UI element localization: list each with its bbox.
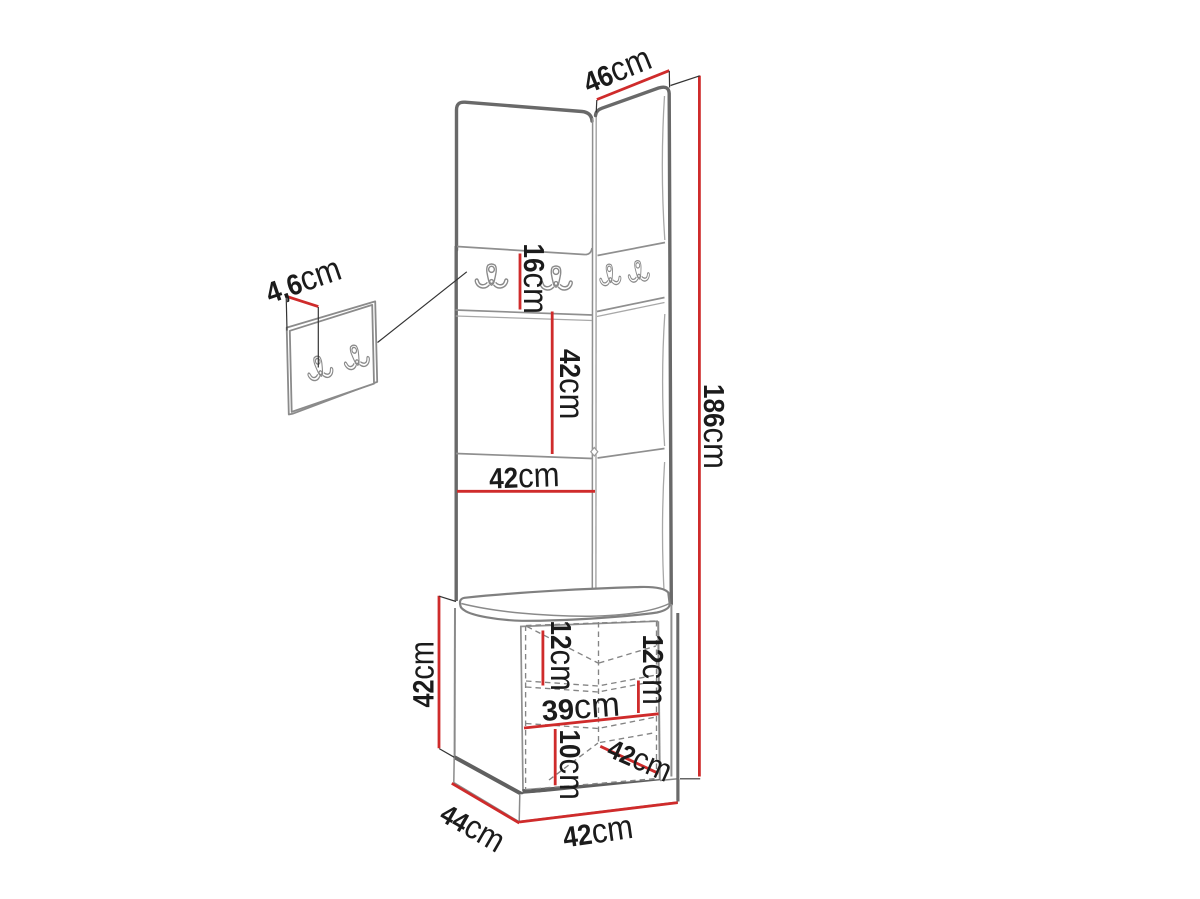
- svg-text:42cm: 42cm: [552, 349, 590, 419]
- svg-text:186cm: 186cm: [696, 384, 734, 469]
- svg-text:12cm: 12cm: [543, 621, 581, 691]
- svg-text:12cm: 12cm: [635, 635, 673, 705]
- svg-text:16cm: 16cm: [516, 244, 554, 314]
- svg-text:10cm: 10cm: [552, 730, 590, 800]
- svg-text:42cm: 42cm: [404, 641, 442, 707]
